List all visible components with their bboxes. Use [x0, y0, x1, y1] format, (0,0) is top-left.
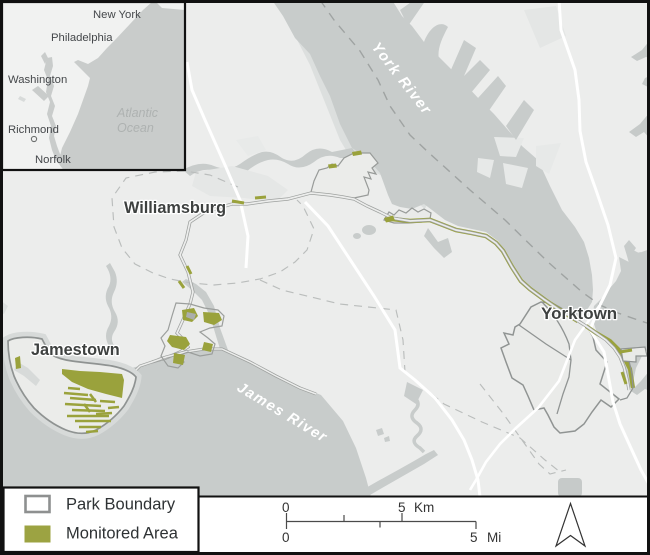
svg-text:Yorktown: Yorktown [541, 304, 617, 323]
svg-text:Norfolk: Norfolk [35, 154, 71, 166]
svg-text:New York: New York [93, 9, 141, 21]
svg-text:0: 0 [282, 500, 290, 515]
svg-text:Williamsburg: Williamsburg [124, 199, 226, 217]
svg-text:Richmond: Richmond [8, 124, 59, 136]
svg-text:Ocean: Ocean [117, 121, 154, 135]
svg-text:Park Boundary: Park Boundary [66, 496, 176, 514]
svg-text:5: 5 [398, 500, 406, 515]
svg-text:Jamestown: Jamestown [31, 341, 120, 359]
svg-text:Atlantic: Atlantic [116, 106, 159, 120]
svg-text:Km: Km [414, 500, 434, 515]
svg-text:0: 0 [282, 530, 290, 545]
svg-text:Monitored Area: Monitored Area [66, 525, 179, 543]
svg-text:Mi: Mi [487, 530, 501, 545]
svg-text:Washington: Washington [8, 74, 67, 86]
svg-text:Philadelphia: Philadelphia [51, 32, 113, 44]
svg-text:5: 5 [470, 530, 478, 545]
